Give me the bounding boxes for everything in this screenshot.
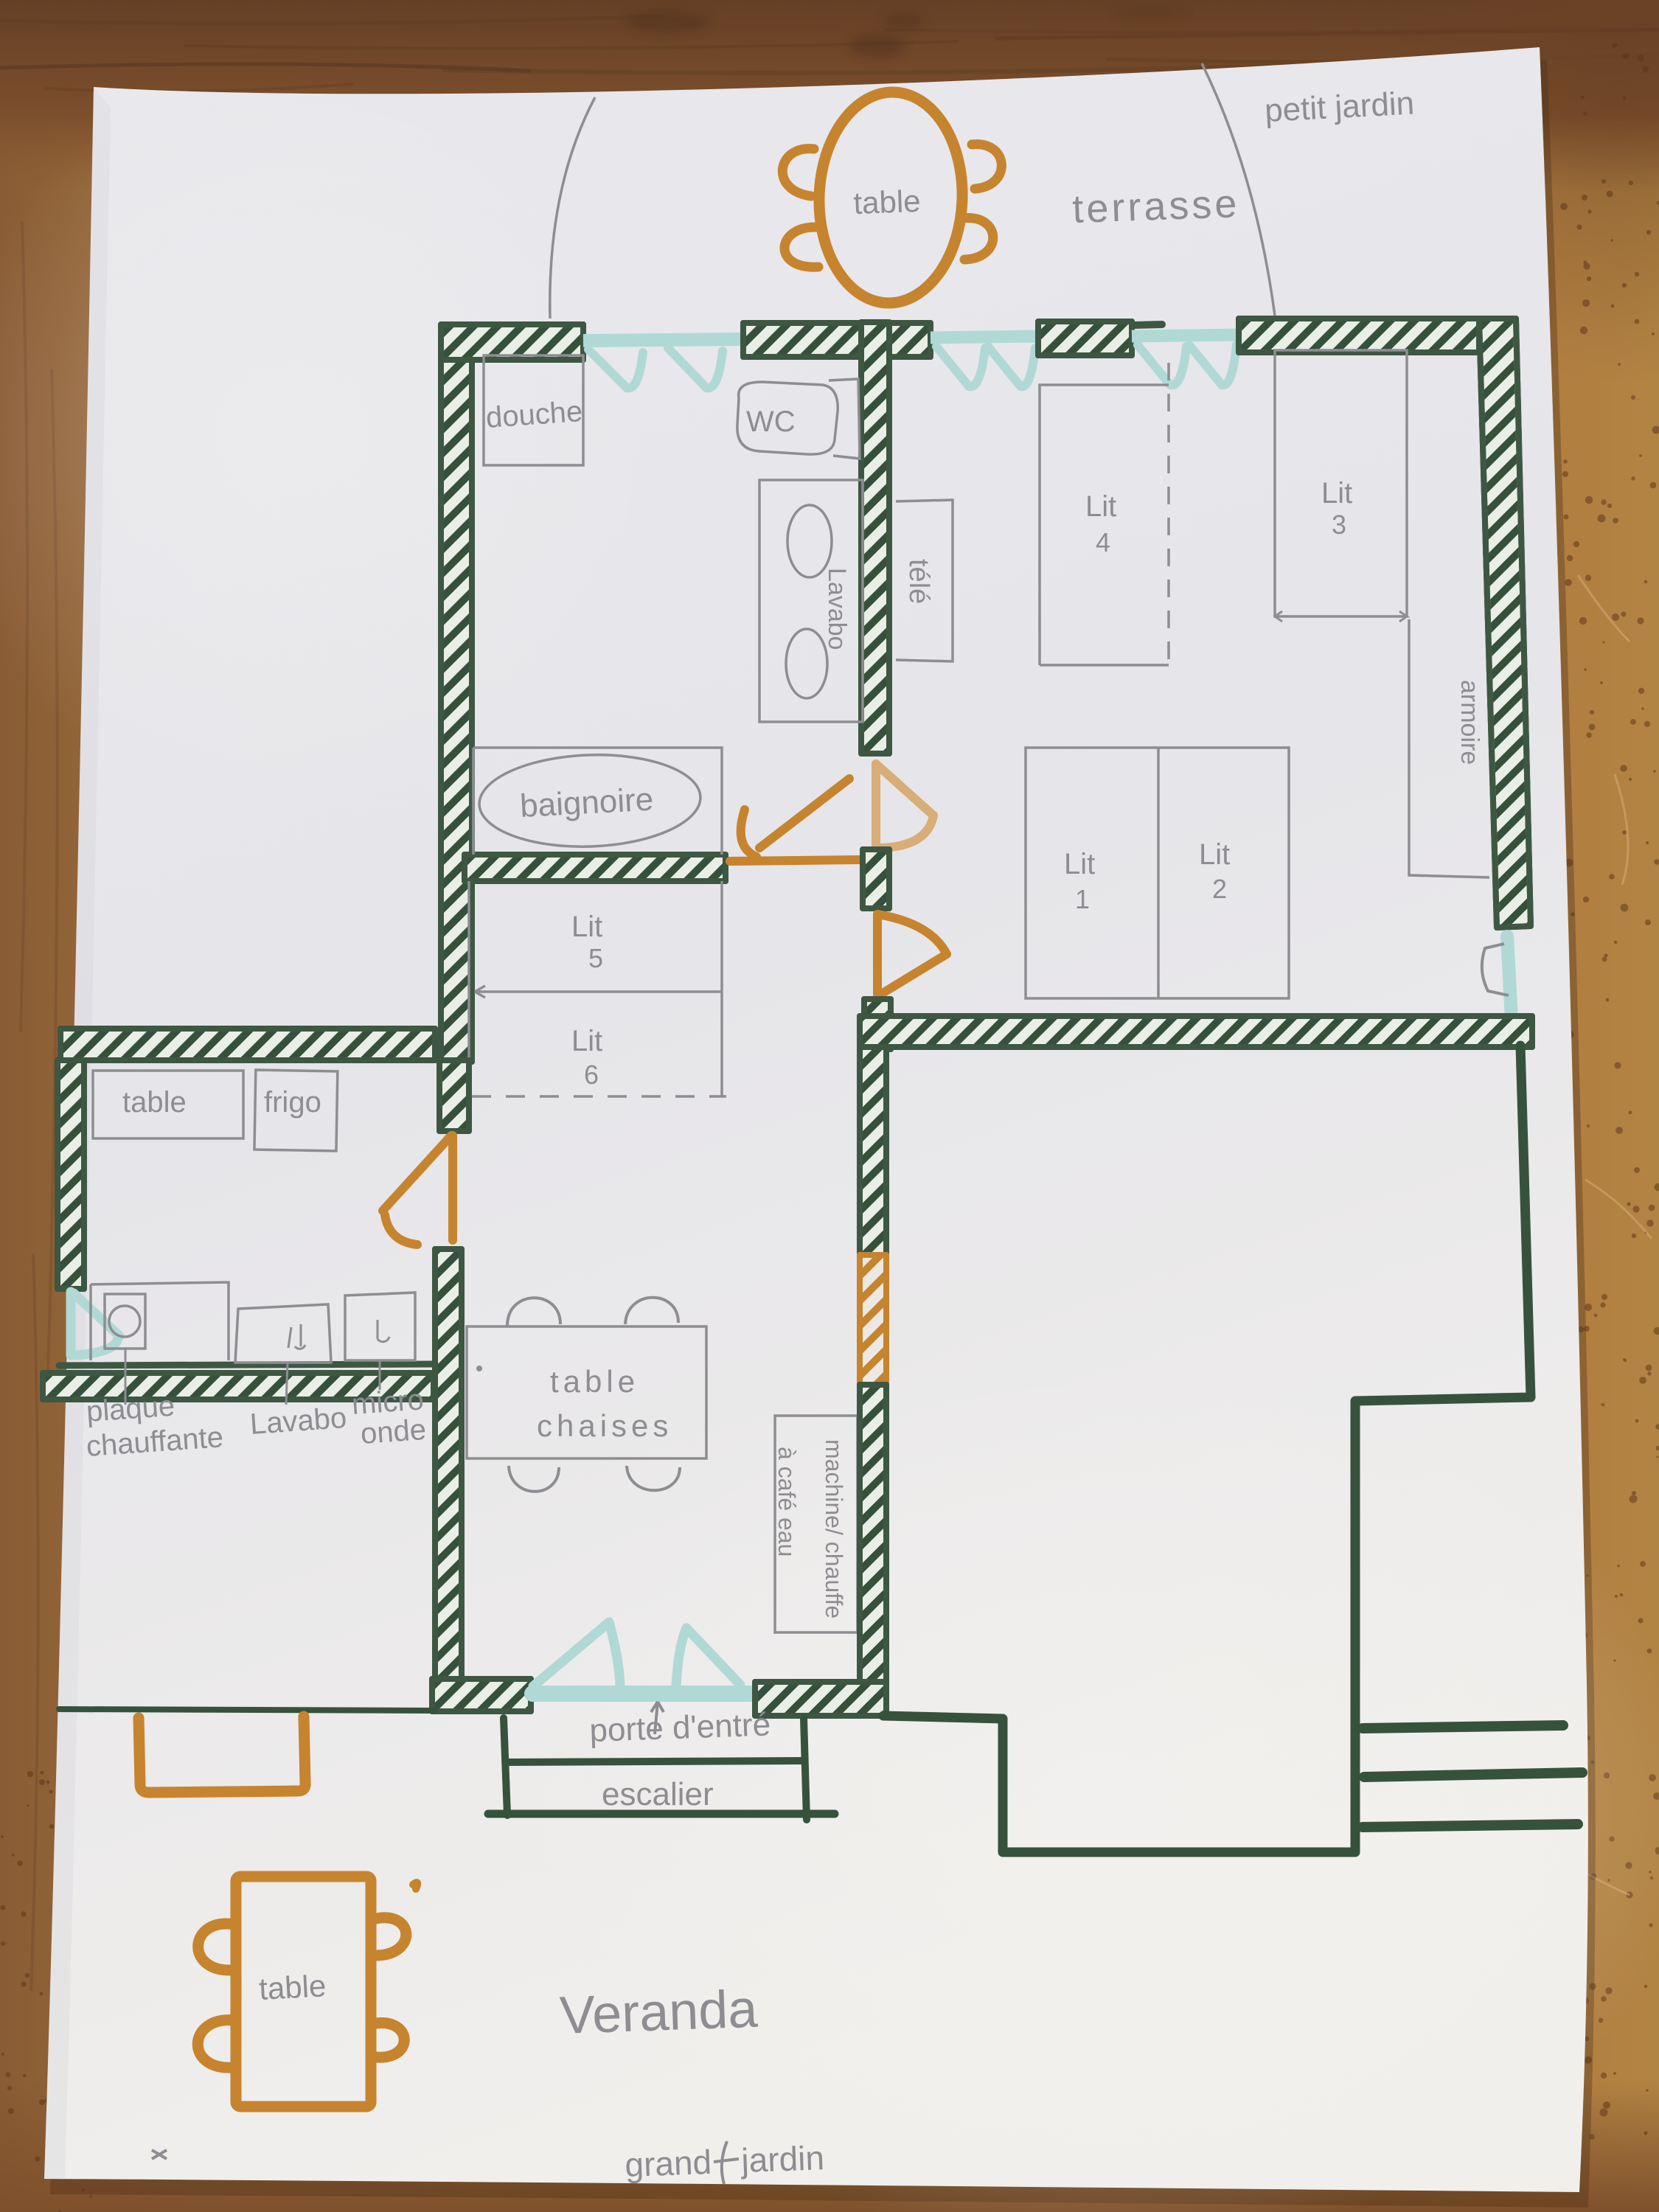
svg-text:Lit: Lit — [571, 1025, 602, 1057]
svg-text:Lit: Lit — [1085, 490, 1116, 523]
svg-text:table: table — [550, 1364, 639, 1399]
svg-text:3: 3 — [1332, 509, 1346, 540]
svg-text:Veranda: Veranda — [559, 1980, 759, 2045]
svg-text:baignoire: baignoire — [519, 782, 654, 824]
svg-text:escalier: escalier — [602, 1776, 714, 1812]
svg-text:Lavabo: Lavabo — [823, 568, 851, 650]
svg-text:terrasse: terrasse — [1071, 181, 1240, 232]
svg-text:porte d'entré: porte d'entré — [589, 1706, 771, 1749]
svg-text:table: table — [853, 184, 922, 220]
svg-text:Lit: Lit — [1064, 848, 1095, 880]
svg-text:table: table — [122, 1086, 187, 1119]
svg-text:table: table — [258, 1968, 327, 2006]
svg-text:WC: WC — [746, 406, 796, 438]
svg-text:4: 4 — [1096, 527, 1110, 557]
svg-text:onde: onde — [360, 1413, 428, 1450]
svg-text:Lit: Lit — [1199, 838, 1230, 871]
svg-text:plaque: plaque — [86, 1390, 176, 1428]
svg-text:douche: douche — [485, 395, 584, 434]
svg-text:6: 6 — [584, 1060, 599, 1090]
svg-text:télé: télé — [903, 559, 934, 604]
svg-text:à café eau: à café eau — [773, 1447, 800, 1557]
svg-text:jardin: jardin — [740, 2138, 825, 2180]
svg-text:2: 2 — [1212, 874, 1227, 904]
svg-text:chaises: chaises — [537, 1408, 672, 1443]
svg-text:frigo: frigo — [264, 1086, 321, 1119]
svg-text:armoire: armoire — [1455, 680, 1484, 765]
svg-text:machine/ chauffe: machine/ chauffe — [821, 1439, 847, 1618]
svg-text:Lit: Lit — [1321, 477, 1352, 509]
svg-text:Lavabo: Lavabo — [249, 1402, 348, 1441]
svg-text:grand: grand — [625, 2143, 712, 2184]
svg-text:1: 1 — [1075, 884, 1090, 914]
svg-text:Lit: Lit — [571, 911, 602, 943]
svg-text:5: 5 — [588, 943, 603, 973]
